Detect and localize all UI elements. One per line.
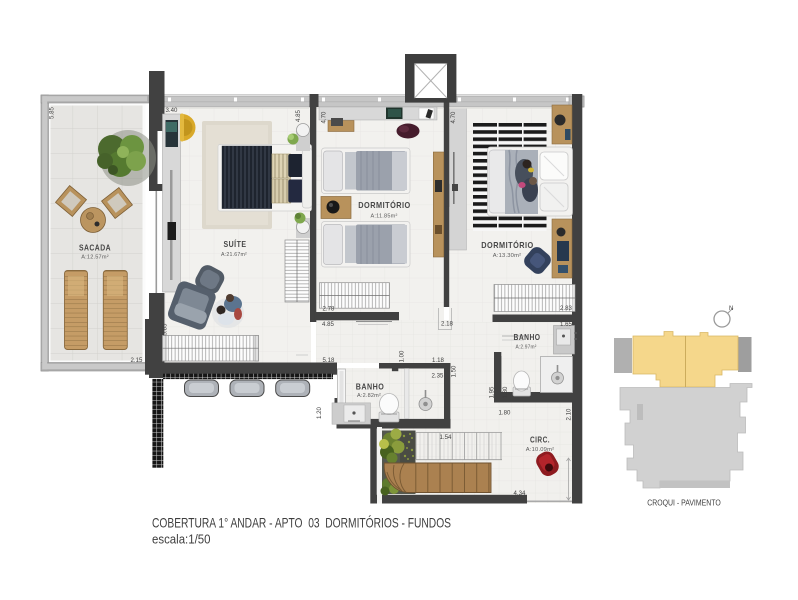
svg-text:A:21.67m²: A:21.67m² bbox=[221, 252, 247, 258]
svg-text:2.18: 2.18 bbox=[441, 321, 453, 328]
svg-text:A:12.57m²: A:12.57m² bbox=[81, 255, 109, 261]
svg-text:1.95: 1.95 bbox=[489, 386, 496, 398]
svg-text:5.18: 5.18 bbox=[323, 357, 335, 364]
svg-text:5.85: 5.85 bbox=[49, 107, 56, 119]
svg-text:A:10.09m²: A:10.09m² bbox=[526, 447, 555, 453]
svg-text:4.70: 4.70 bbox=[321, 111, 328, 123]
svg-text:4.70: 4.70 bbox=[450, 111, 457, 123]
svg-text:COBERTURA 1° ANDAR - APTO 03: COBERTURA 1° ANDAR - APTO 03 DORMITÓRIOS… bbox=[152, 515, 451, 531]
svg-text:2.15: 2.15 bbox=[131, 357, 143, 364]
svg-text:4.34: 4.34 bbox=[514, 490, 526, 497]
svg-text:SACADA: SACADA bbox=[79, 244, 111, 253]
svg-text:1.18: 1.18 bbox=[432, 357, 444, 364]
svg-text:1.80: 1.80 bbox=[499, 410, 511, 417]
svg-text:DORMITÓRIO: DORMITÓRIO bbox=[481, 239, 534, 250]
svg-text:A:2.82m²: A:2.82m² bbox=[357, 393, 381, 399]
svg-text:1.00: 1.00 bbox=[399, 350, 406, 362]
svg-text:CROQUI - PAVIMENTO: CROQUI - PAVIMENTO bbox=[647, 499, 721, 508]
svg-text:DORMITÓRIO: DORMITÓRIO bbox=[358, 199, 411, 210]
svg-text:CIRC.: CIRC. bbox=[530, 436, 550, 445]
svg-text:2.35: 2.35 bbox=[432, 373, 444, 380]
svg-text:SUÍTE: SUÍTE bbox=[224, 239, 247, 249]
svg-text:A:2.97m²: A:2.97m² bbox=[516, 345, 537, 351]
svg-text:1.80: 1.80 bbox=[502, 386, 509, 398]
svg-text:5.85: 5.85 bbox=[162, 323, 169, 335]
svg-text:1.65: 1.65 bbox=[560, 321, 572, 328]
svg-text:3.40: 3.40 bbox=[166, 107, 178, 114]
svg-text:BANHO: BANHO bbox=[514, 333, 541, 342]
svg-text:4.85: 4.85 bbox=[295, 110, 302, 122]
svg-text:2.78: 2.78 bbox=[323, 306, 335, 313]
svg-text:4.85: 4.85 bbox=[322, 321, 334, 328]
svg-text:BANHO: BANHO bbox=[356, 383, 385, 392]
svg-text:1.54: 1.54 bbox=[440, 434, 452, 441]
svg-text:N: N bbox=[729, 306, 733, 312]
svg-text:escala:1/50: escala:1/50 bbox=[152, 532, 211, 547]
svg-text:1.20: 1.20 bbox=[316, 407, 323, 419]
svg-text:2.83: 2.83 bbox=[560, 305, 572, 312]
svg-text:A:11.85m²: A:11.85m² bbox=[371, 214, 398, 220]
svg-text:1.50: 1.50 bbox=[451, 365, 458, 377]
svg-text:2.10: 2.10 bbox=[566, 408, 573, 420]
svg-text:A:13.30m²: A:13.30m² bbox=[493, 253, 522, 259]
